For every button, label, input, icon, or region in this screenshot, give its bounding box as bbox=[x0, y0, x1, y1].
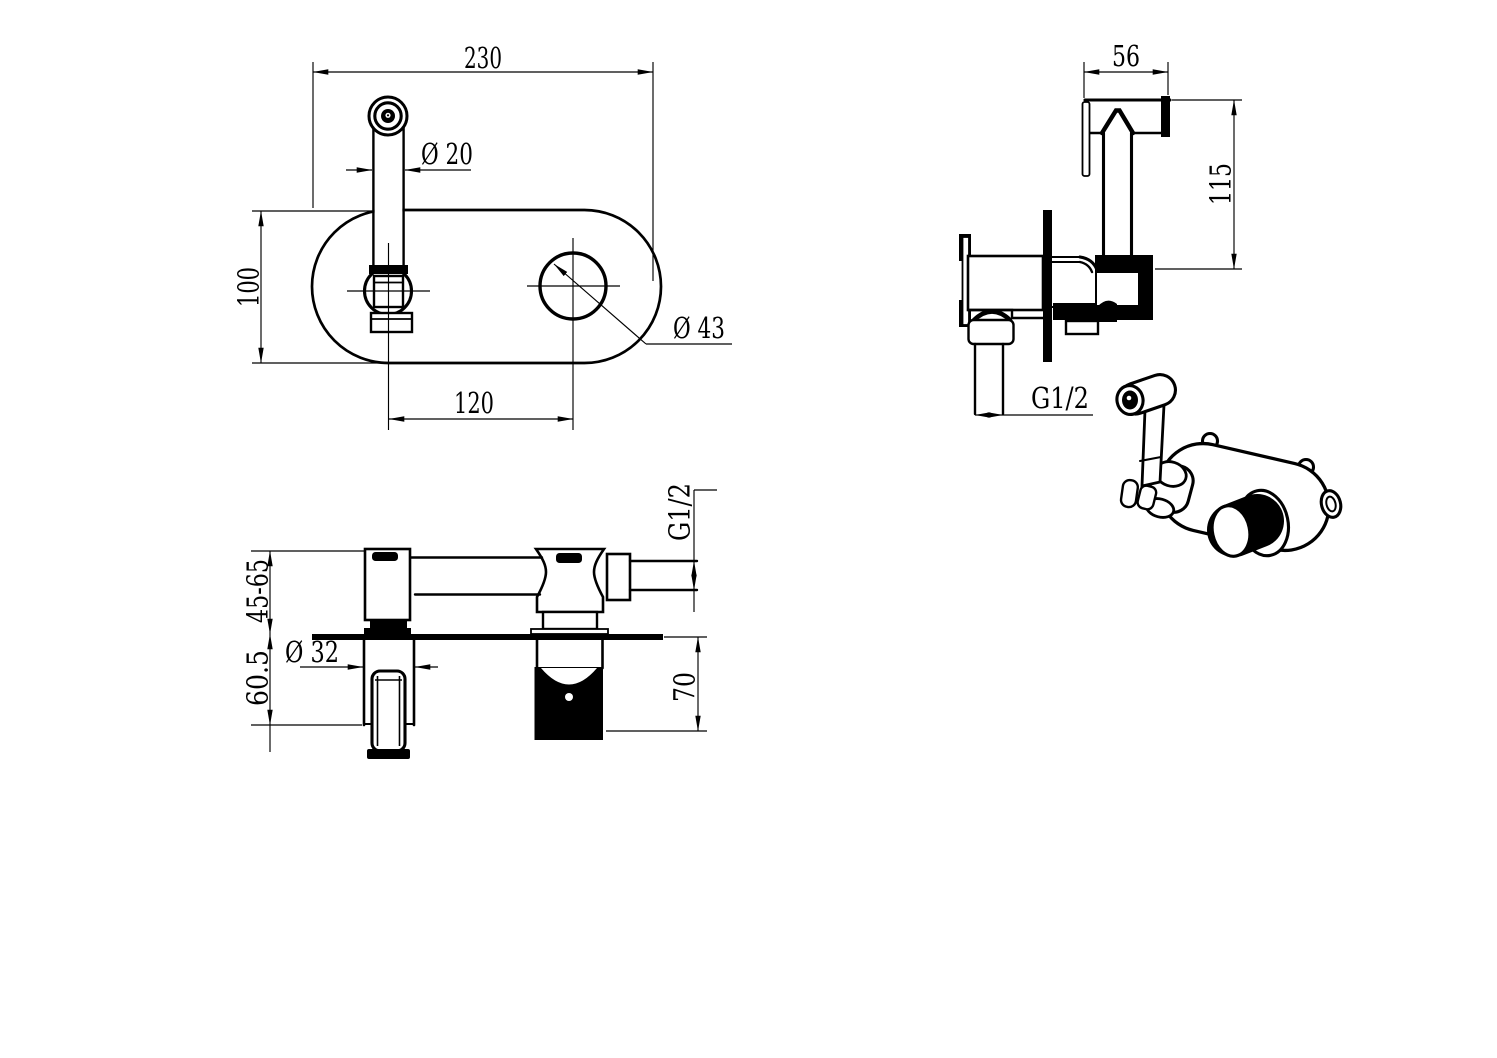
nozzle-face-plate bbox=[1083, 102, 1090, 176]
outlet-nut bbox=[607, 554, 630, 600]
bidet-mixer-technical-drawing: 230 Ø 20 100 120 Ø 43 bbox=[0, 0, 1497, 1058]
dim-text-box-depth: 70 bbox=[668, 672, 702, 702]
dim-text-recess-depth: 60.5 bbox=[241, 650, 275, 706]
escutcheon-plate-edge bbox=[1043, 210, 1052, 362]
dim-text-plate-height: 100 bbox=[232, 267, 266, 307]
dim-text-head-height: 115 bbox=[1204, 163, 1238, 205]
sprayer-head bbox=[369, 97, 407, 135]
head-end-cap bbox=[1161, 96, 1170, 137]
dim-text-sleeve-diameter: Ø 32 bbox=[285, 635, 339, 669]
inlet-elbow bbox=[969, 320, 1014, 344]
dim-text-head-width: 56 bbox=[1112, 39, 1140, 73]
technical-drawing-page: 230 Ø 20 100 120 Ø 43 bbox=[0, 0, 1497, 1058]
dim-text-plate-width: 230 bbox=[464, 41, 502, 75]
dim-text-wall-depth-range: 45-65 bbox=[241, 559, 275, 623]
dim-text-spout-diameter: Ø 20 bbox=[421, 137, 473, 171]
dim-text-knob-diameter: Ø 43 bbox=[673, 311, 725, 345]
holder-base-nut bbox=[371, 313, 412, 332]
dim-text-inlet-thread: G1/2 bbox=[1031, 381, 1089, 415]
hose-outlet-nut bbox=[1066, 321, 1098, 334]
valve-neck bbox=[543, 612, 597, 629]
dim-text-outlet-thread: G1/2 bbox=[663, 483, 697, 541]
dim-text-hole-spacing: 120 bbox=[454, 386, 494, 420]
